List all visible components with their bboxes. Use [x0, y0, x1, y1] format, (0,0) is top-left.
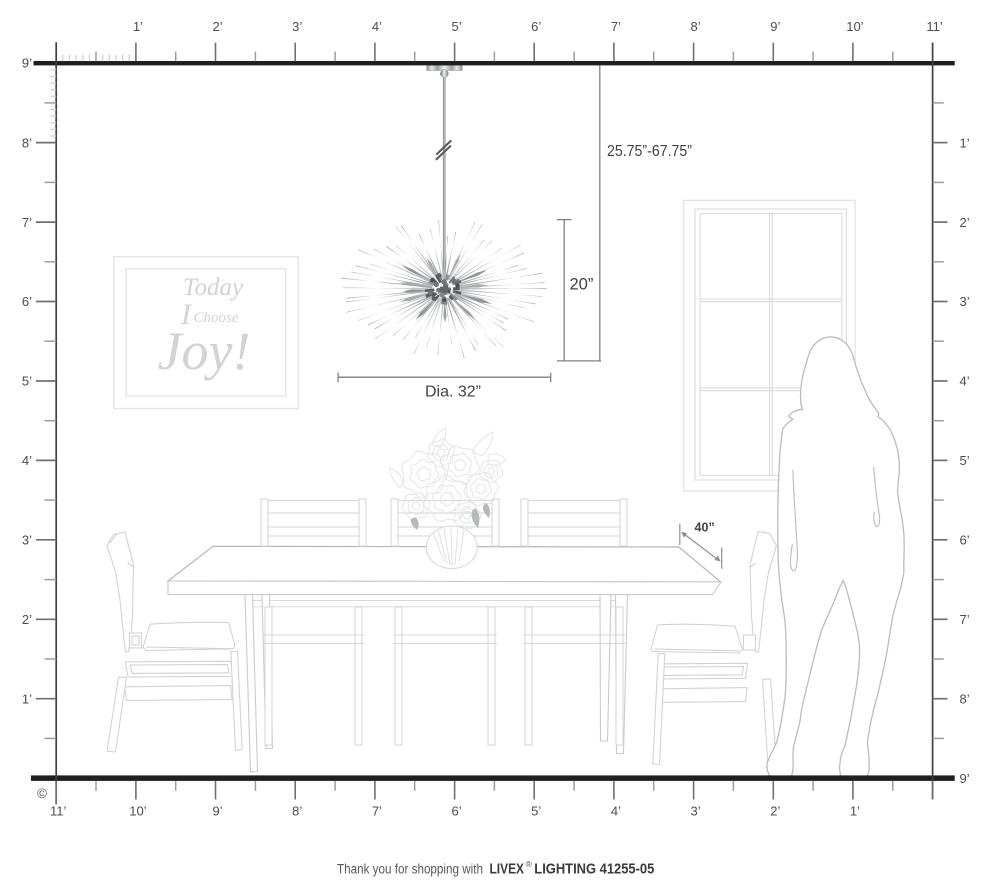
svg-text:5’: 5’ — [960, 453, 970, 468]
svg-text:4’: 4’ — [22, 453, 32, 468]
svg-text:6’: 6’ — [531, 19, 541, 34]
svg-text:7’: 7’ — [611, 19, 621, 34]
svg-text:3’: 3’ — [292, 19, 302, 34]
svg-text:Joy!: Joy! — [158, 321, 251, 381]
svg-text:3’: 3’ — [960, 294, 970, 309]
svg-text:1’: 1’ — [22, 691, 32, 706]
svg-text:9’: 9’ — [960, 771, 970, 786]
svg-text:8’: 8’ — [960, 691, 970, 706]
svg-text:1’: 1’ — [850, 804, 860, 819]
svg-text:2’: 2’ — [212, 19, 222, 34]
svg-text:6’: 6’ — [960, 533, 970, 548]
svg-text:10’: 10’ — [129, 804, 146, 819]
svg-text:©: © — [37, 786, 47, 801]
svg-text:7’: 7’ — [372, 804, 382, 819]
svg-text:11’: 11’ — [926, 19, 942, 34]
svg-text:11’: 11’ — [50, 804, 66, 819]
svg-text:®: ® — [526, 859, 533, 869]
svg-text:Thank you for shopping with: Thank you for shopping with — [337, 862, 483, 877]
svg-text:40”: 40” — [695, 521, 715, 535]
svg-text:5’: 5’ — [531, 804, 541, 819]
svg-text:9’: 9’ — [22, 56, 32, 71]
svg-text:LIGHTING 41255-05: LIGHTING 41255-05 — [534, 861, 654, 878]
svg-text:5’: 5’ — [22, 374, 32, 389]
svg-text:Today: Today — [183, 274, 244, 301]
svg-text:6’: 6’ — [22, 294, 32, 309]
svg-text:1’: 1’ — [133, 19, 143, 34]
svg-text:4’: 4’ — [960, 374, 970, 389]
svg-text:10’: 10’ — [846, 19, 863, 34]
svg-text:7’: 7’ — [960, 612, 970, 627]
svg-text:8’: 8’ — [691, 19, 701, 34]
svg-text:2’: 2’ — [960, 215, 970, 230]
svg-text:25.75”-67.75”: 25.75”-67.75” — [607, 143, 692, 160]
svg-text:2’: 2’ — [22, 612, 32, 627]
svg-text:7’: 7’ — [22, 215, 32, 230]
svg-text:9’: 9’ — [212, 804, 222, 819]
svg-text:Dia. 32”: Dia. 32” — [425, 384, 481, 401]
svg-text:6’: 6’ — [452, 804, 462, 819]
svg-text:3’: 3’ — [691, 804, 701, 819]
svg-text:4’: 4’ — [372, 19, 382, 34]
svg-text:1’: 1’ — [960, 135, 970, 150]
svg-text:5’: 5’ — [452, 19, 462, 34]
svg-text:4’: 4’ — [611, 804, 621, 819]
svg-text:8’: 8’ — [292, 804, 302, 819]
svg-text:LIVEX: LIVEX — [490, 861, 525, 878]
svg-text:9’: 9’ — [770, 19, 780, 34]
svg-text:20”: 20” — [570, 276, 594, 294]
svg-text:2’: 2’ — [770, 804, 780, 819]
svg-text:8’: 8’ — [22, 135, 32, 150]
svg-text:3’: 3’ — [22, 533, 32, 548]
